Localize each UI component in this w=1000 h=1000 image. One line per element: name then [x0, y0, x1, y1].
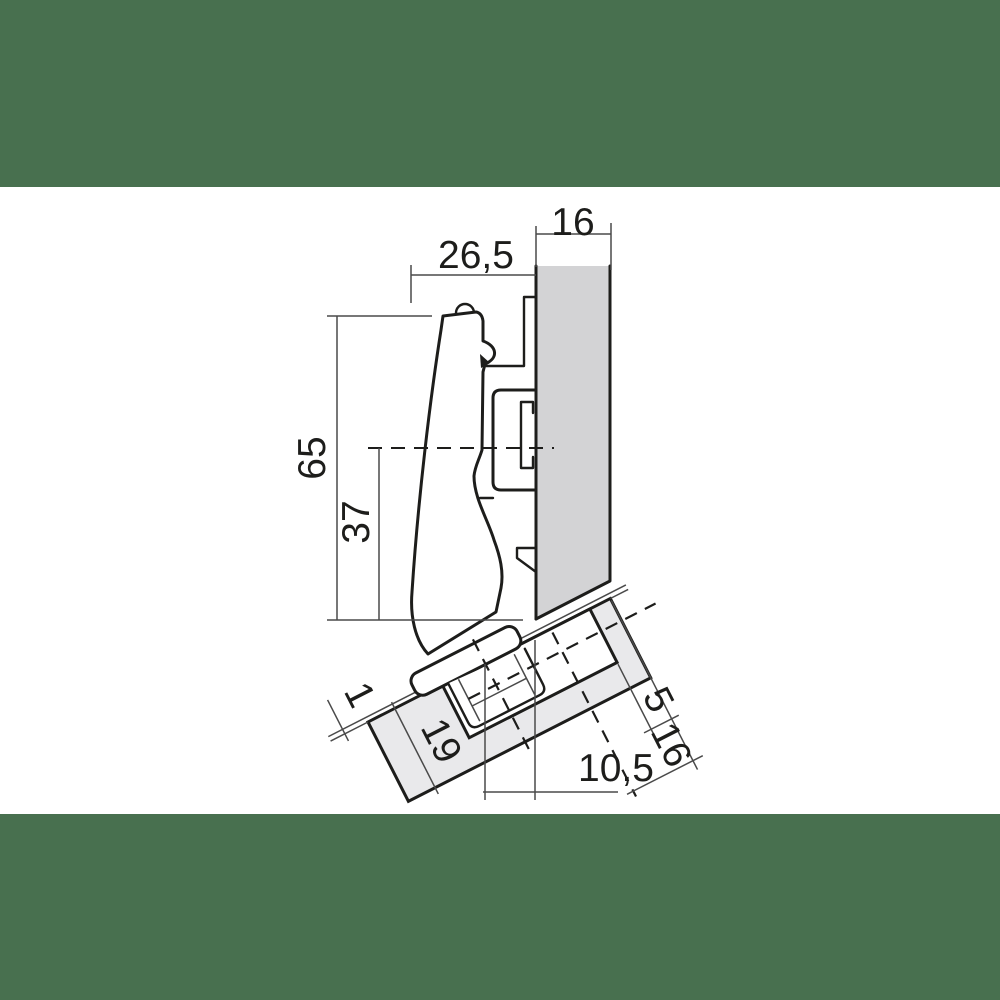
label-arm-projection: 26,5 — [438, 234, 514, 277]
technical-drawing-page: 16 26,5 65 37 10,5 1 19 5 16 — [0, 0, 1000, 1000]
plate-clip-slot — [521, 402, 533, 468]
label-cup-center-distance: 10,5 — [578, 747, 654, 790]
label-gap: 1 — [335, 676, 383, 715]
hinge-arm-and-plate — [412, 297, 536, 654]
label-cup-edge-distance: 5 — [634, 680, 682, 719]
label-axis-height: 37 — [335, 500, 378, 543]
cabinet-side-panel — [536, 266, 610, 619]
plate-body — [493, 390, 536, 490]
label-overall-height: 65 — [291, 436, 334, 479]
plate-bottom-hook — [517, 548, 536, 572]
label-panel-thickness: 16 — [551, 201, 594, 244]
hinge-dimension-drawing: 16 26,5 65 37 10,5 1 19 5 16 — [0, 0, 1000, 1000]
side-panel-body — [536, 266, 610, 619]
